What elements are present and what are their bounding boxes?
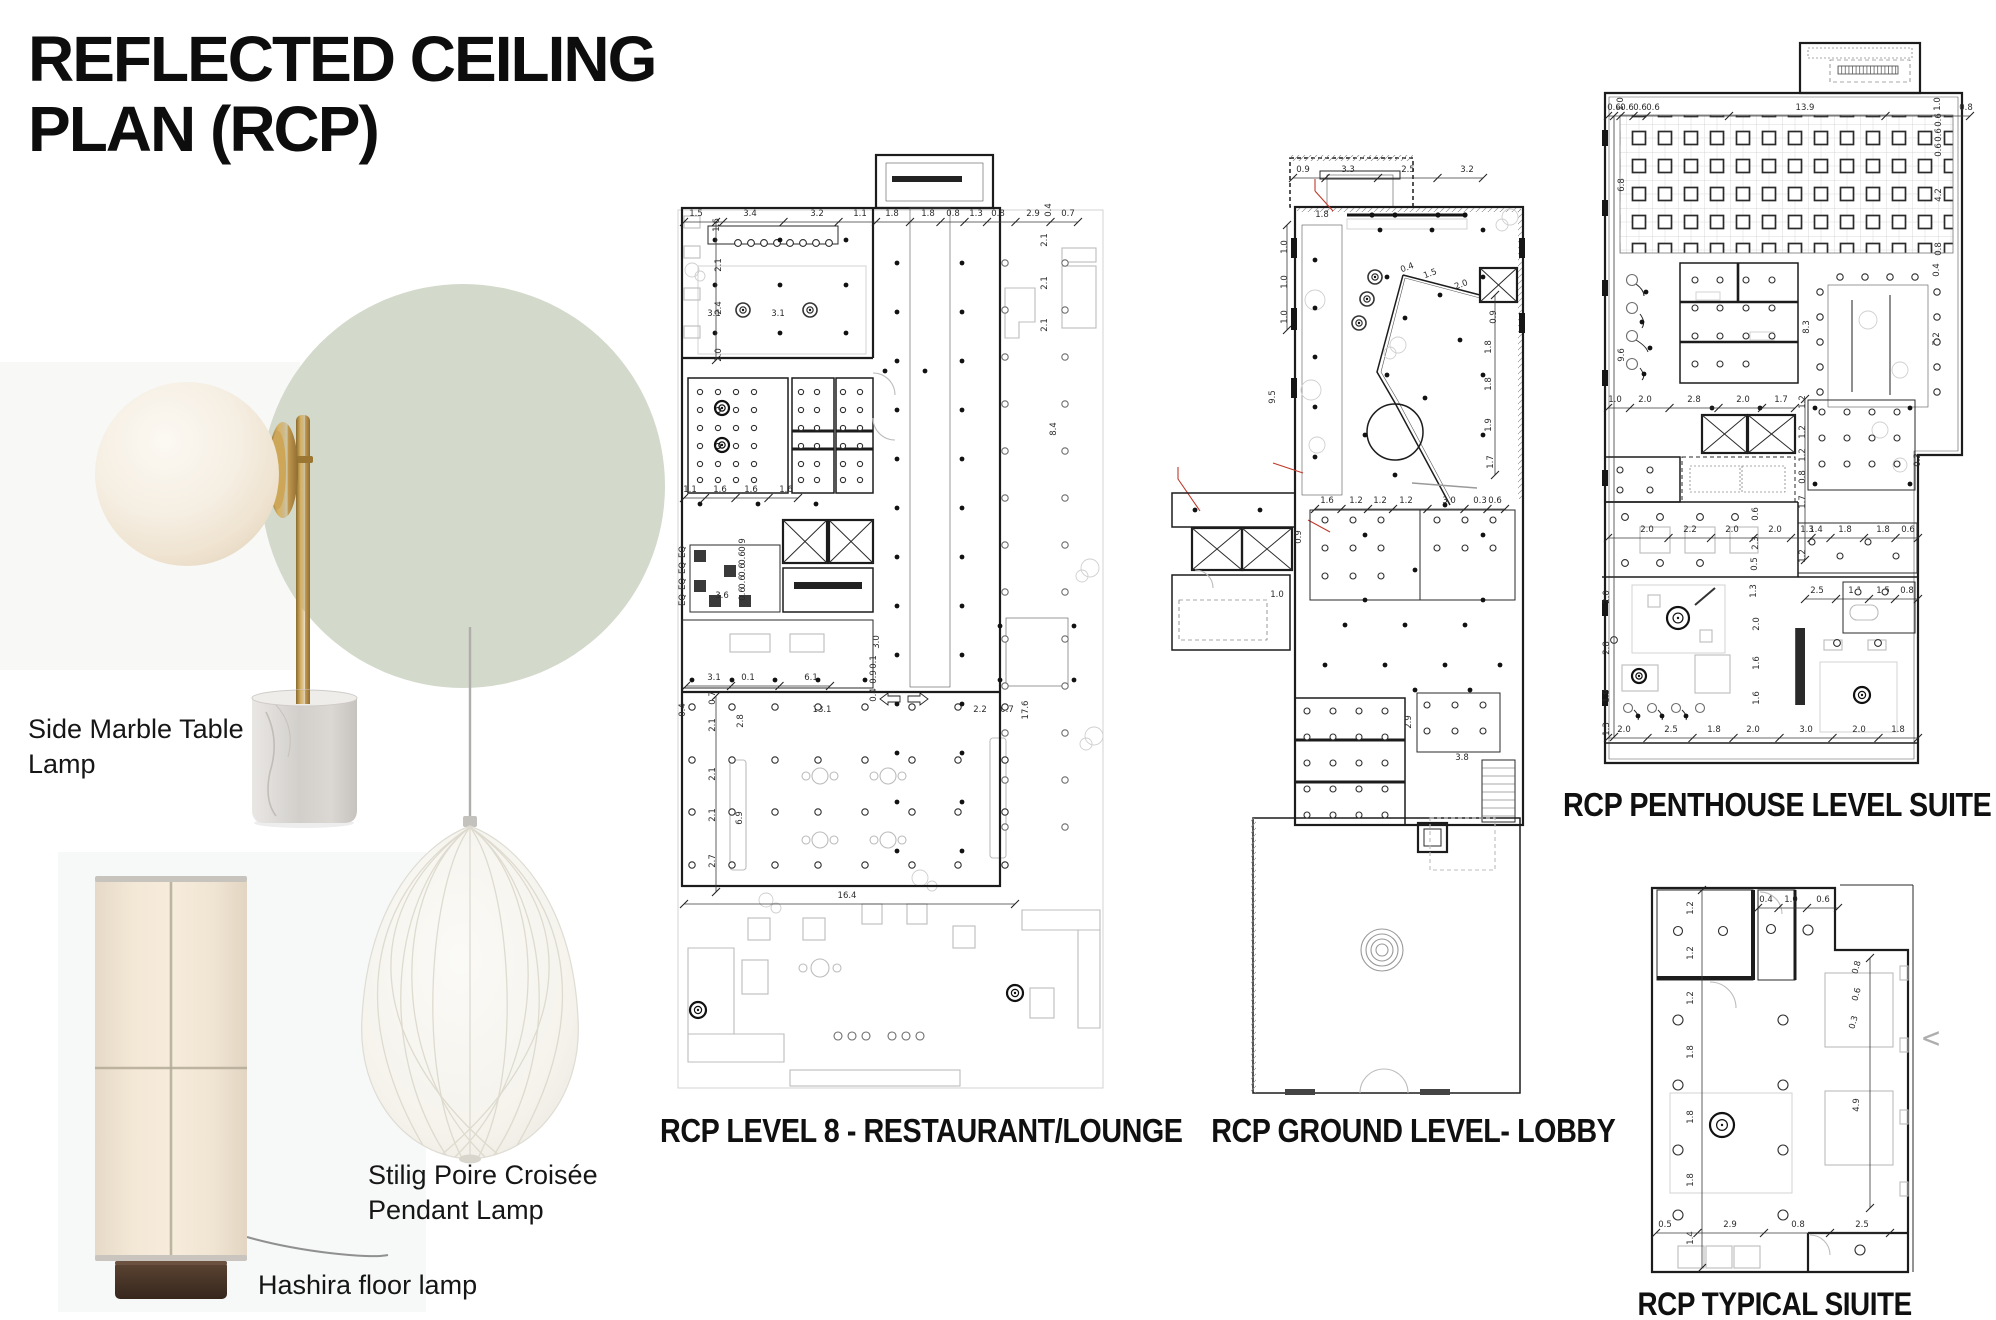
caption-lobby: RCP GROUND LEVEL- LOBBY [1133,1112,1693,1150]
dim-label: 2.0 [1725,525,1739,535]
dim-label: 2.9 [1026,209,1040,219]
dim-label: 0.6 [738,587,748,601]
underlay-floorplan [678,210,1103,1088]
dim-label: 0.9 [1296,165,1310,175]
dim-label: 1.8 [1484,377,1494,391]
dim-label: EQ [678,578,688,590]
dim-label: 0.8 [1900,586,1914,596]
dim-label: 1.2 [1373,496,1387,506]
dim-labels: 0.41.00.61.21.21.21.81.81.81.40.80.60.34… [1658,895,1869,1245]
dim-label: 0.8 [946,209,960,219]
dim-label: 3.8 [1455,753,1469,763]
dim-label: 0.8 [1934,242,1944,256]
carousel-prev-chevron[interactable]: < [1922,1024,1940,1054]
moodboard-page: REFLECTED CEILING PLAN (RCP) [0,0,1996,1320]
dim-label: 2.0 [1453,278,1469,292]
shade-bottom-rim [95,1255,247,1261]
page-title-line1: REFLECTED CEILING [28,24,655,94]
dim-label: 1.2 [1686,901,1696,915]
dim-label: 0.3 [1473,496,1487,506]
dim-label: 1.6 [1752,691,1762,705]
dim-label: 1.6 [713,485,727,495]
dim-label: 0.4 [1759,895,1773,905]
dim-label: 1.8 [1707,725,1721,735]
dim-label: 0.5 [1658,1220,1672,1230]
dim-label: 1.8 [1838,525,1852,535]
dim-label: 0.7 [708,691,718,705]
dim-label: 0.3 [1847,1015,1860,1031]
dim-label: 0.6 [738,551,748,565]
dim-label: 2.0 [1638,395,1652,405]
dim-label: 0.6 [1751,507,1761,521]
dim-label: 1.7 [1774,395,1788,405]
dim-label: 1.8 [1686,1110,1696,1124]
dim-label: 2.8 [1602,641,1612,655]
dim-label: EQ [678,594,688,606]
dim-label: 1.2 [1686,946,1696,960]
dim-label: 0.8 [1798,470,1808,484]
dim-label: 2.5 [1664,725,1678,735]
dim-label: 2.1 [708,808,718,822]
fountain [1361,929,1403,971]
dim-label: 2.1 [708,767,718,781]
dim-label: 3.1 [707,309,721,319]
hashira-floor-lamp-image [70,860,450,1310]
dim-label: 0.7 [1061,209,1075,219]
dim-label: 16.4 [838,891,857,901]
dim-label: 2.2 [973,705,987,715]
dim-label: 1.8 [1686,1045,1696,1059]
dim-label: 13.9 [1796,103,1815,113]
louver-band [910,208,950,687]
dim-label: 1.1 [853,209,867,219]
dim-label: 4.2 [1934,188,1944,202]
dim-label: 1.6 [744,485,758,495]
dim-label: 1.0 [1616,97,1626,111]
plan-suite: 0.41.00.61.21.21.21.81.81.81.40.80.60.34… [1650,878,1950,1290]
dim-label: 1.3 [1749,584,1759,598]
dim-label: 1.8 [921,209,935,219]
caption-penthouse: RCP PENTHOUSE LEVEL SUITE [1497,786,1996,824]
dim-label: 1.0 [1280,310,1290,324]
dim-label: 8.4 [1049,422,1059,436]
dim-label: 1.0 [1280,275,1290,289]
dim-label: 1.3 [1602,722,1612,736]
dim-label: 2.9 [1404,715,1414,729]
dim-label: 2.0 [1746,725,1760,735]
dim-label: 2.1 [1040,233,1050,247]
dim-label: 1.6 [779,485,793,495]
dim-label: 3.0 [872,635,882,649]
power-cord [247,1237,388,1256]
dim-label: 1.1 [683,485,697,495]
dim-label: 0.4 [678,703,688,717]
dim-label: 3.6 [715,591,729,601]
dim-label: 0.1 [869,655,879,669]
dim-label: 1.0 [1608,395,1622,405]
dim-label: 1.6 [1320,496,1334,506]
floor-lamp [95,876,388,1299]
dim-label: 2.0 [1736,395,1750,405]
dim-label: 2.9 [1723,1220,1737,1230]
wood-base [115,1261,227,1299]
dim-label: 2.1 [1040,276,1050,290]
dim-labels: 0.93.32.53.21.81.01.01.09.50.41.52.00.91… [1268,165,1502,763]
bed [1825,973,1893,1047]
dim-label: 0.6 [1934,113,1944,127]
label-side-marble-lamp: Side Marble Table Lamp [28,712,244,782]
dim-label: 3.4 [743,209,757,219]
dim-label: 2.0 [1617,725,1631,735]
dim-label: 9.6 [1617,348,1627,362]
dim-labels: 1.53.43.21.11.81.80.81.30.82.90.70.41.62… [678,203,1075,901]
dim-label: 1.0 [1784,895,1798,905]
dim-label: 2.0 [1752,617,1762,631]
dim-label: 1.4 [1809,525,1823,535]
dim-label: 0.6 [1934,143,1944,157]
rcp-linework [1172,155,1525,1095]
pendant-cap [463,816,477,827]
dim-label: 1.8 [1876,525,1890,535]
dim-label: 0.4 [1044,203,1054,217]
shade-top-rim [95,876,247,882]
dim-label: 0.4 [1399,261,1415,275]
dim-label: 3.0 [1799,725,1813,735]
dim-label: 2.5 [1401,165,1415,175]
dim-label: 1.9 [1484,418,1494,432]
dim-label: 2.8 [1687,395,1701,405]
page-title-line2: PLAN (RCP) [28,94,655,164]
dim-label: 3.2 [1460,165,1474,175]
label-stilig-pendant: Stilig Poire Croisée Pendant Lamp [368,1158,598,1228]
louver-square [1828,285,1928,407]
dim-label: 1.0 [1270,590,1284,600]
dim-label: 1.0 [1933,97,1943,111]
plan-lobby: 0.93.32.53.21.81.01.01.09.50.41.52.00.91… [1165,145,1537,1100]
hatch-block [1006,618,1068,686]
caption-suite: RCP TYPICAL SIUITE [1495,1286,1996,1320]
dim-label: 1.7 [1798,495,1808,509]
dim-label: 0.6 [1646,103,1660,113]
dim-label: 4.9 [1852,1098,1862,1112]
wall-bar [1796,628,1805,705]
dim-label: 2.1 [714,258,724,272]
dim-label: 1.9 [1602,689,1612,703]
dim-label: 1.5 [1422,267,1438,281]
dim-label: 2.1 [1040,318,1050,332]
dim-label: 2.5 [1810,586,1824,596]
dim-label: 0.8 [1959,103,1973,113]
dim-label: 17.6 [1021,701,1031,720]
dim-label: 1.8 [1484,340,1494,354]
dim-label: 1.7 [1486,455,1496,469]
lamp-globe [95,382,279,566]
dim-label: 0.8 [1791,1220,1805,1230]
dim-label: 1.8 [885,209,899,219]
plan-level8: 1.53.43.21.11.81.80.81.30.82.90.70.41.62… [670,148,1115,1096]
dim-label: 2.0 [1640,525,1654,535]
dim-label: 2.7 [708,854,718,868]
plan-penthouse: 0.60.60.60.613.90.81.01.06.80.60.60.64.2… [1600,40,1996,785]
dim-label: 1.6 [1752,656,1762,670]
dim-label: 6.9 [735,811,745,825]
dim-label: 1.3 [969,209,983,219]
dim-label: 0.9 [869,670,879,684]
dim-label: 0.6 [1850,987,1863,1003]
dim-label: 1.0 [1280,240,1290,254]
red-leader [1273,463,1303,473]
dim-label: 2.1 [708,718,718,732]
dim-label: 6.8 [1617,178,1627,192]
dim-label: 1.8 [1315,210,1329,220]
dim-label: 6.1 [804,673,818,683]
dim-label: 3.1 [707,673,721,683]
dim-label: 0.6 [1934,128,1944,142]
rcp-linework [682,155,1068,886]
dim-label: 0.6 [1901,525,1915,535]
decor-symbols [1652,886,1894,1272]
dim-label: 0.6 [1488,496,1502,506]
dim-label: 0.3 [1913,453,1923,467]
dim-label: 1.5 [689,209,703,219]
caption-level8: RCP LEVEL 8 - RESTAURANT/LOUNGE [621,1112,1181,1150]
louver-band [1302,225,1342,495]
dim-label: 8.3 [1802,320,1812,334]
waffle-ceiling [1620,115,1953,253]
label-hashira: Hashira floor lamp [258,1268,477,1303]
dim-label: 2.0 [1768,525,1782,535]
dim-label: 0.5 [1750,557,1760,571]
dim-label: 1.2 [1798,425,1808,439]
dim-label: 0.4 [869,688,879,702]
red-leader [1178,467,1200,511]
dim-label: 0.1 [741,673,755,683]
dim-label: 0.6 [1816,895,1830,905]
dim-label: 2.0 [1602,590,1612,604]
dim-label: EQ [678,546,688,558]
dim-label: 0.9 [738,538,748,552]
terrace [1253,818,1520,1093]
dim-label: 1.8 [1686,1173,1696,1187]
dim-label: 0.6 [738,575,748,589]
page-title: REFLECTED CEILING PLAN (RCP) [28,24,655,165]
dim-label: 2.2 [1683,525,1697,535]
dim-label: 1.2 [1686,991,1696,1005]
dim-label: 9.5 [1268,390,1278,404]
dim-label: 0.9 [1294,530,1304,544]
dim-label: 1.2 [1798,448,1808,462]
dim-label: 2.0 [1852,725,1866,735]
dim-label: 3.3 [1341,165,1355,175]
dim-label: 1.2 [1399,496,1413,506]
dim-label: 3.2 [810,209,824,219]
dim-label: 0.8 [991,209,1005,219]
dim-label: 2.5 [1855,1220,1869,1230]
dim-label: 1.2 [1798,549,1808,563]
dim-label: 0.6 [1633,103,1647,113]
dim-label: 2.8 [736,714,746,728]
dim-label: 0.9 [1489,310,1499,324]
dim-label: 3.1 [771,309,785,319]
dim-label: 1.8 [1891,725,1905,735]
dim-label: 1.2 [1349,496,1363,506]
dim-label: EQ [678,562,688,574]
dim-label: 0.4 [1932,263,1942,277]
dim-label: 0.6 [738,563,748,577]
